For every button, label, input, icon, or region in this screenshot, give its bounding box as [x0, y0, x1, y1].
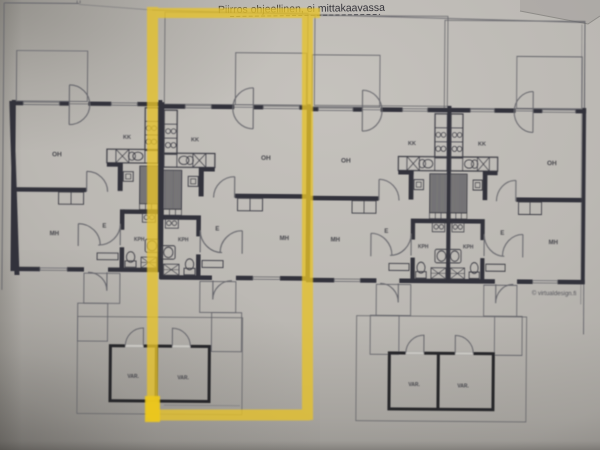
svg-text:KPH: KPH [178, 237, 189, 243]
svg-text:E: E [215, 227, 219, 233]
svg-text:E: E [384, 229, 388, 235]
svg-text:KK: KK [408, 141, 416, 147]
svg-text:KPH: KPH [134, 237, 145, 243]
svg-text:KK: KK [478, 142, 486, 148]
svg-text:OH: OH [52, 151, 62, 158]
svg-text:VAR.: VAR. [177, 375, 189, 381]
svg-text:OH: OH [547, 160, 557, 167]
svg-text:KPH: KPH [418, 244, 429, 250]
svg-text:VAR.: VAR. [457, 383, 469, 389]
svg-text:© virtualdesign.fi: © virtualdesign.fi [532, 290, 577, 297]
svg-text:KK: KK [191, 137, 199, 143]
svg-text:MH: MH [280, 236, 289, 242]
svg-text:KPH: KPH [463, 244, 474, 250]
svg-text:OH: OH [261, 155, 271, 162]
svg-text:VAR.: VAR. [127, 374, 139, 380]
svg-text:MH: MH [331, 237, 340, 243]
svg-text:VAR.: VAR. [408, 382, 420, 388]
svg-text:E: E [500, 231, 504, 237]
svg-text:E: E [102, 224, 106, 230]
svg-text:OH: OH [341, 158, 351, 165]
svg-text:MH: MH [50, 231, 59, 237]
svg-text:MH: MH [549, 240, 558, 246]
svg-text:KK: KK [123, 135, 131, 141]
